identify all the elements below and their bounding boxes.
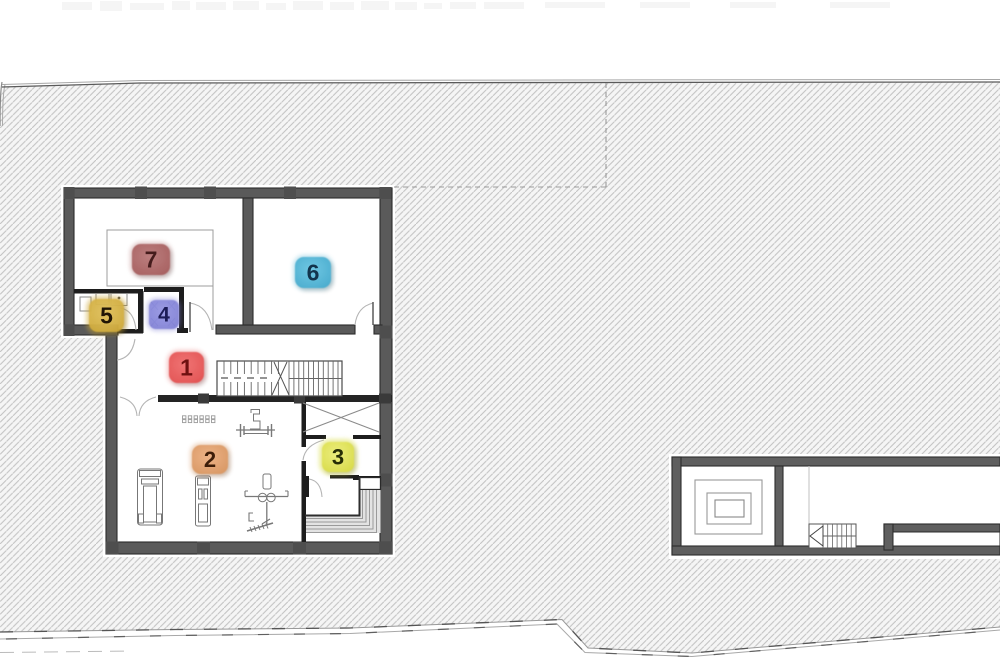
svg-text:3: 3 — [332, 445, 344, 470]
svg-text:5: 5 — [100, 303, 113, 329]
svg-text:6: 6 — [307, 260, 320, 286]
svg-text:4: 4 — [158, 304, 170, 327]
svg-text:2: 2 — [204, 447, 216, 472]
svg-text:1: 1 — [180, 355, 193, 381]
svg-text:7: 7 — [145, 247, 158, 273]
